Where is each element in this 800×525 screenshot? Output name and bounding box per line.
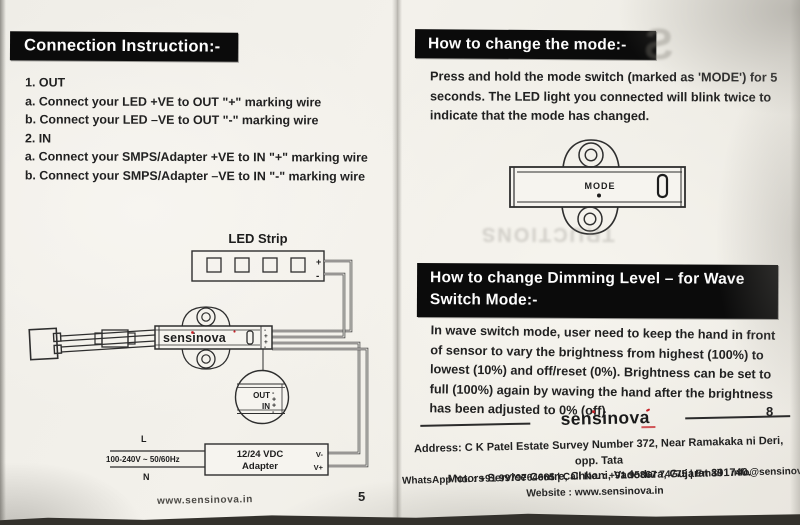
adapter-label: 12/24 VDC [237, 449, 284, 460]
adapter-v-minus: V- [316, 450, 324, 459]
step-line: 1. OUT [25, 73, 368, 93]
mains-rating-label: 100-240V ~ 50/60Hz [106, 455, 180, 464]
step-line: b. Connect your LED –VE to OUT "-" marki… [25, 111, 368, 131]
adapter-box: 12/24 VDC Adapter V- V+ [205, 444, 328, 475]
brand-i-dot [191, 331, 194, 334]
wiring-diagram: LED Strip + - [10, 227, 390, 495]
device-brand-logo: sensinova [163, 331, 227, 345]
connection-steps: 1. OUT a. Connect your LED +VE to OUT "+… [25, 73, 368, 186]
brand-a-accent [233, 330, 235, 332]
dimming-section-title: How to change Dimming Level – for Wave S… [417, 263, 778, 319]
adapter-label: Adapter [242, 461, 278, 472]
left-footer-website: www.sensinova.in [110, 493, 300, 507]
input-connector-plug [29, 328, 62, 360]
mode-switch-dot [597, 194, 601, 198]
mode-section-title: How to change the mode:- [415, 29, 656, 60]
page-fold-shadow [392, 0, 402, 525]
controller-device: sensinova - + + - [155, 308, 272, 368]
terminal-magnifier: OUT - + IN + - [236, 371, 289, 424]
left-page-title: Connection Instruction:- [10, 31, 238, 62]
line-neutral-label: N [143, 472, 150, 482]
mode-section-title-text: How to change the mode:- [428, 35, 627, 54]
adapter-v-plus: V+ [314, 463, 324, 472]
scanned-manual-spread: Connection Instruction:- 1. OUT a. Conne… [0, 0, 800, 525]
mode-switch-label: MODE [585, 181, 616, 191]
led-strip [192, 251, 324, 281]
strip-plus-mark: + [316, 257, 321, 267]
brand-rule-left [420, 423, 530, 427]
mode-device-diagram: MODE [495, 128, 710, 253]
brand-logo: sensinova [545, 407, 665, 431]
dimming-title-line1: How to change Dimming Level – for Wave [430, 267, 778, 291]
strip-minus-mark: - [316, 271, 319, 282]
magnifier-in-label: IN [262, 402, 270, 411]
magnifier-out-label: OUT [253, 391, 270, 400]
brand-logo-text: sensinova [560, 407, 650, 429]
left-page-title-text: Connection Instruction:- [24, 36, 221, 56]
left-page-number: 5 [358, 489, 365, 504]
step-line: a. Connect your SMPS/Adapter +VE to IN "… [25, 148, 368, 168]
dimming-title-line2: Switch Mode:- [430, 289, 778, 313]
terminal-mark: - [264, 344, 266, 351]
mode-section-body: Press and hold the mode switch (marked a… [430, 67, 782, 127]
step-line: b. Connect your SMPS/Adapter –VE to IN "… [25, 166, 368, 186]
led-strip-label: LED Strip [228, 231, 287, 246]
step-line: a. Connect your LED +VE to OUT "+" marki… [25, 92, 368, 112]
step-line: 2. IN [25, 129, 368, 149]
line-live-label: L [141, 434, 147, 444]
brand-tagline-mark [641, 426, 655, 428]
